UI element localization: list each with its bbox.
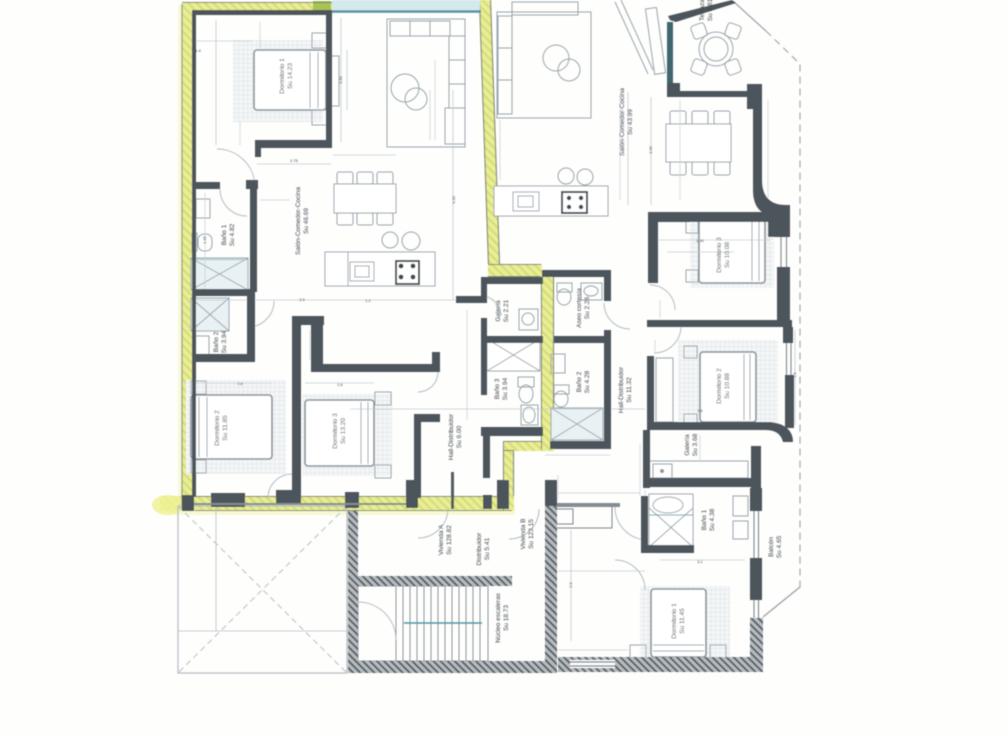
svg-text:Su 46.69: Su 46.69 (303, 208, 310, 234)
svg-text:2.8: 2.8 (237, 381, 243, 386)
svg-text:Su 4.82: Su 4.82 (229, 223, 236, 246)
svg-text:3.95: 3.95 (648, 145, 653, 154)
svg-text:Hall-Distribuidor: Hall-Distribuidor (618, 366, 625, 413)
svg-text:1.2: 1.2 (365, 298, 371, 303)
svg-text:2.8: 2.8 (697, 408, 703, 413)
svg-text:Su 2.26: Su 2.26 (584, 296, 591, 319)
svg-text:Su 4.38: Su 4.38 (709, 508, 716, 531)
svg-text:Su 3.94: Su 3.94 (502, 377, 509, 400)
svg-text:Núcleo escaleras: Núcleo escaleras (495, 592, 502, 643)
svg-text:Su 43.99: Su 43.99 (627, 109, 634, 135)
svg-text:Su 11.32: Su 11.32 (626, 377, 633, 403)
svg-text:2.6: 2.6 (337, 382, 343, 387)
svg-text:Dormitorio 1: Dormitorio 1 (279, 58, 286, 94)
svg-text:Galería: Galería (495, 300, 502, 322)
svg-text:Salón-Comedor-Cocina: Salón-Comedor-Cocina (619, 88, 626, 156)
svg-text:Baño 2: Baño 2 (213, 331, 220, 352)
svg-text:Su 128.82: Su 128.82 (446, 525, 453, 555)
svg-text:Distribuidor: Distribuidor (476, 532, 483, 566)
svg-text:Baño 1: Baño 1 (221, 224, 228, 245)
svg-text:Su 13.20: Su 13.20 (340, 418, 347, 444)
svg-text:Dormitorio 1: Dormitorio 1 (671, 603, 678, 639)
svg-text:1.4: 1.4 (195, 48, 201, 53)
svg-text:Su 18.73: Su 18.73 (503, 605, 510, 631)
svg-text:Su 10.08: Su 10.08 (724, 242, 731, 268)
svg-text:2.9: 2.9 (568, 581, 573, 587)
svg-text:Vivienda B: Vivienda B (520, 519, 527, 550)
svg-text:Su 5.81: Su 5.81 (707, 0, 714, 21)
svg-text:3.1: 3.1 (697, 559, 703, 564)
svg-text:Balcón: Balcón (768, 537, 775, 557)
svg-text:Su 11.85: Su 11.85 (222, 415, 229, 441)
svg-text:Dormitorio 3: Dormitorio 3 (332, 413, 339, 449)
svg-text:1.95: 1.95 (202, 235, 207, 244)
svg-text:Su 6.00: Su 6.00 (456, 425, 463, 448)
svg-text:Vivienda A: Vivienda A (438, 524, 445, 555)
svg-text:Baño 3: Baño 3 (494, 378, 501, 399)
svg-text:Hall-Distribuidor: Hall-Distribuidor (448, 413, 455, 460)
svg-text:2.75: 2.75 (290, 158, 299, 163)
svg-text:Dormitorio 2: Dormitorio 2 (716, 368, 723, 404)
svg-text:Su 4.65: Su 4.65 (776, 535, 783, 558)
svg-text:3.30: 3.30 (696, 238, 705, 243)
svg-text:Su 11.45: Su 11.45 (679, 608, 686, 634)
svg-text:Su 4.28: Su 4.28 (584, 370, 591, 393)
svg-text:Galería: Galería (684, 434, 691, 456)
svg-text:Dormitorio 2: Dormitorio 2 (214, 410, 221, 446)
svg-text:Dormitorio 3: Dormitorio 3 (716, 237, 723, 273)
svg-text:Su 3.94: Su 3.94 (221, 330, 228, 353)
svg-text:Baño 2: Baño 2 (576, 371, 583, 392)
svg-text:4.30: 4.30 (451, 195, 456, 204)
svg-text:Su 5.41: Su 5.41 (484, 537, 491, 560)
svg-text:3.9: 3.9 (299, 297, 305, 302)
svg-text:Aseo cortesía: Aseo cortesía (576, 288, 583, 328)
svg-text:Su 14.23: Su 14.23 (287, 63, 294, 89)
svg-text:Baño 1: Baño 1 (701, 509, 708, 530)
svg-text:Terraza: Terraza (699, 0, 706, 21)
svg-text:Su 3.68: Su 3.68 (692, 433, 699, 456)
svg-text:Su 2.21: Su 2.21 (503, 299, 510, 322)
svg-text:Salón-Comedor-Cocina: Salón-Comedor-Cocina (295, 187, 302, 255)
svg-text:Su 10.88: Su 10.88 (724, 373, 731, 399)
svg-text:3.60: 3.60 (338, 75, 343, 84)
svg-text:Su 123.15: Su 123.15 (528, 519, 535, 549)
